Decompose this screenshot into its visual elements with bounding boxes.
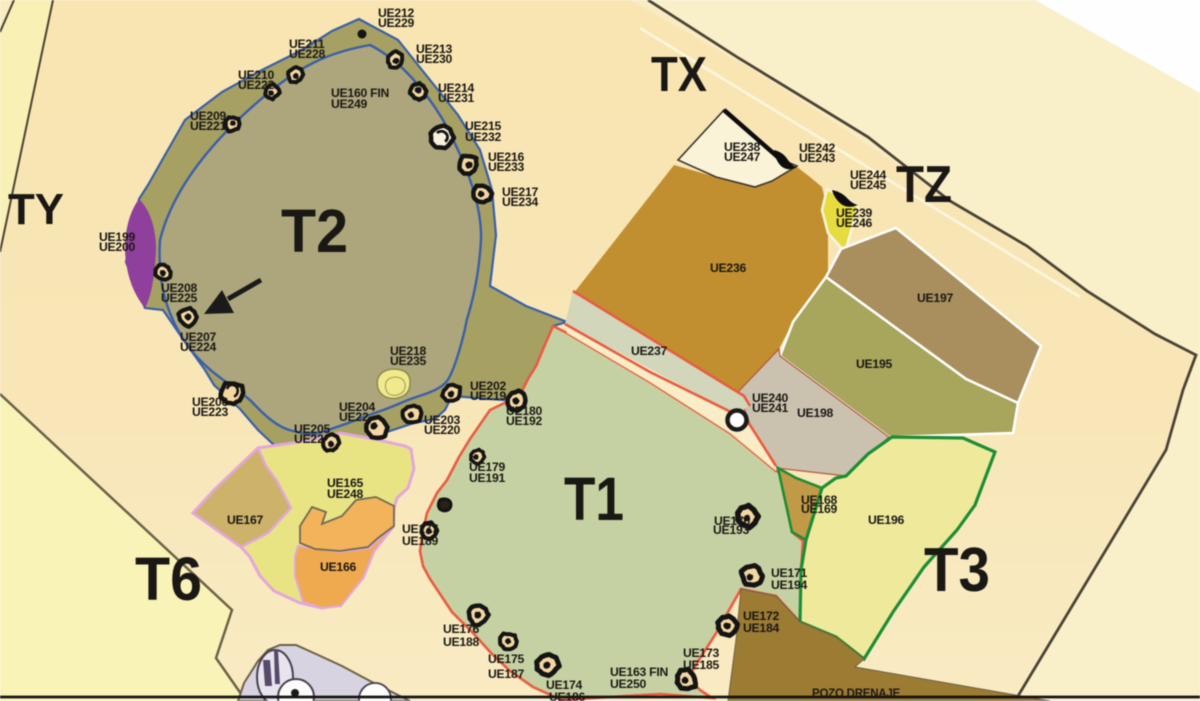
svg-text:UE195: UE195 xyxy=(856,357,892,371)
svg-text:UE220: UE220 xyxy=(424,423,460,437)
svg-text:T2: T2 xyxy=(281,197,348,265)
svg-text:UE243: UE243 xyxy=(799,151,835,165)
svg-text:UE234: UE234 xyxy=(502,195,538,209)
svg-text:UE196: UE196 xyxy=(868,513,904,527)
svg-text:UE200: UE200 xyxy=(99,240,135,254)
svg-text:UE187: UE187 xyxy=(488,667,524,681)
svg-text:TY: TY xyxy=(8,185,64,234)
svg-text:T3: T3 xyxy=(924,536,990,605)
svg-text:UE167: UE167 xyxy=(227,513,263,527)
svg-text:UE166: UE166 xyxy=(320,560,356,574)
svg-text:T1: T1 xyxy=(564,465,624,533)
svg-text:UE185: UE185 xyxy=(683,658,719,672)
svg-text:UE221: UE221 xyxy=(190,119,226,133)
svg-text:UE250: UE250 xyxy=(610,677,646,691)
svg-text:UE194: UE194 xyxy=(771,578,807,592)
svg-text:UE245: UE245 xyxy=(850,178,886,192)
svg-text:UE189: UE189 xyxy=(402,534,438,548)
svg-text:UE236: UE236 xyxy=(710,261,746,275)
svg-text:UE169: UE169 xyxy=(801,502,837,516)
svg-text:POZO DRENAJE: POZO DRENAJE xyxy=(812,686,900,700)
svg-text:UE176: UE176 xyxy=(443,622,479,636)
svg-text:UE231: UE231 xyxy=(438,91,474,105)
svg-text:UE248: UE248 xyxy=(327,487,363,501)
svg-text:UE193: UE193 xyxy=(713,523,749,537)
svg-text:UE249: UE249 xyxy=(331,97,367,111)
svg-text:UE219: UE219 xyxy=(470,389,506,403)
svg-text:UE223: UE223 xyxy=(192,405,228,419)
svg-text:UE198: UE198 xyxy=(797,406,833,420)
svg-text:UE235: UE235 xyxy=(390,354,426,368)
svg-text:UE225: UE225 xyxy=(161,291,197,305)
svg-text:UE247: UE247 xyxy=(724,150,760,164)
svg-text:UE228: UE228 xyxy=(289,47,325,61)
svg-text:UE175: UE175 xyxy=(488,652,524,666)
svg-text:UE233: UE233 xyxy=(488,160,524,174)
svg-text:TX: TX xyxy=(651,48,707,102)
svg-text:T6: T6 xyxy=(135,545,202,613)
svg-text:UE232: UE232 xyxy=(465,130,501,144)
svg-text:UE192: UE192 xyxy=(506,414,542,428)
svg-text:UE197: UE197 xyxy=(917,291,953,305)
svg-text:UE186: UE186 xyxy=(549,690,585,701)
svg-text:UE191: UE191 xyxy=(469,471,505,485)
svg-text:UE22: UE22 xyxy=(294,432,324,446)
svg-text:TZ: TZ xyxy=(896,156,952,214)
svg-text:UE184: UE184 xyxy=(743,621,779,635)
svg-text:UE222: UE222 xyxy=(238,78,274,92)
svg-text:UE246: UE246 xyxy=(836,216,872,230)
svg-text:UE241: UE241 xyxy=(752,401,788,415)
svg-text:UE22: UE22 xyxy=(339,410,369,424)
svg-text:UE230: UE230 xyxy=(416,52,452,66)
svg-text:UE229: UE229 xyxy=(378,16,414,30)
svg-text:UE188: UE188 xyxy=(443,635,479,649)
svg-text:UE237: UE237 xyxy=(631,344,667,358)
svg-text:UE224: UE224 xyxy=(180,340,216,354)
